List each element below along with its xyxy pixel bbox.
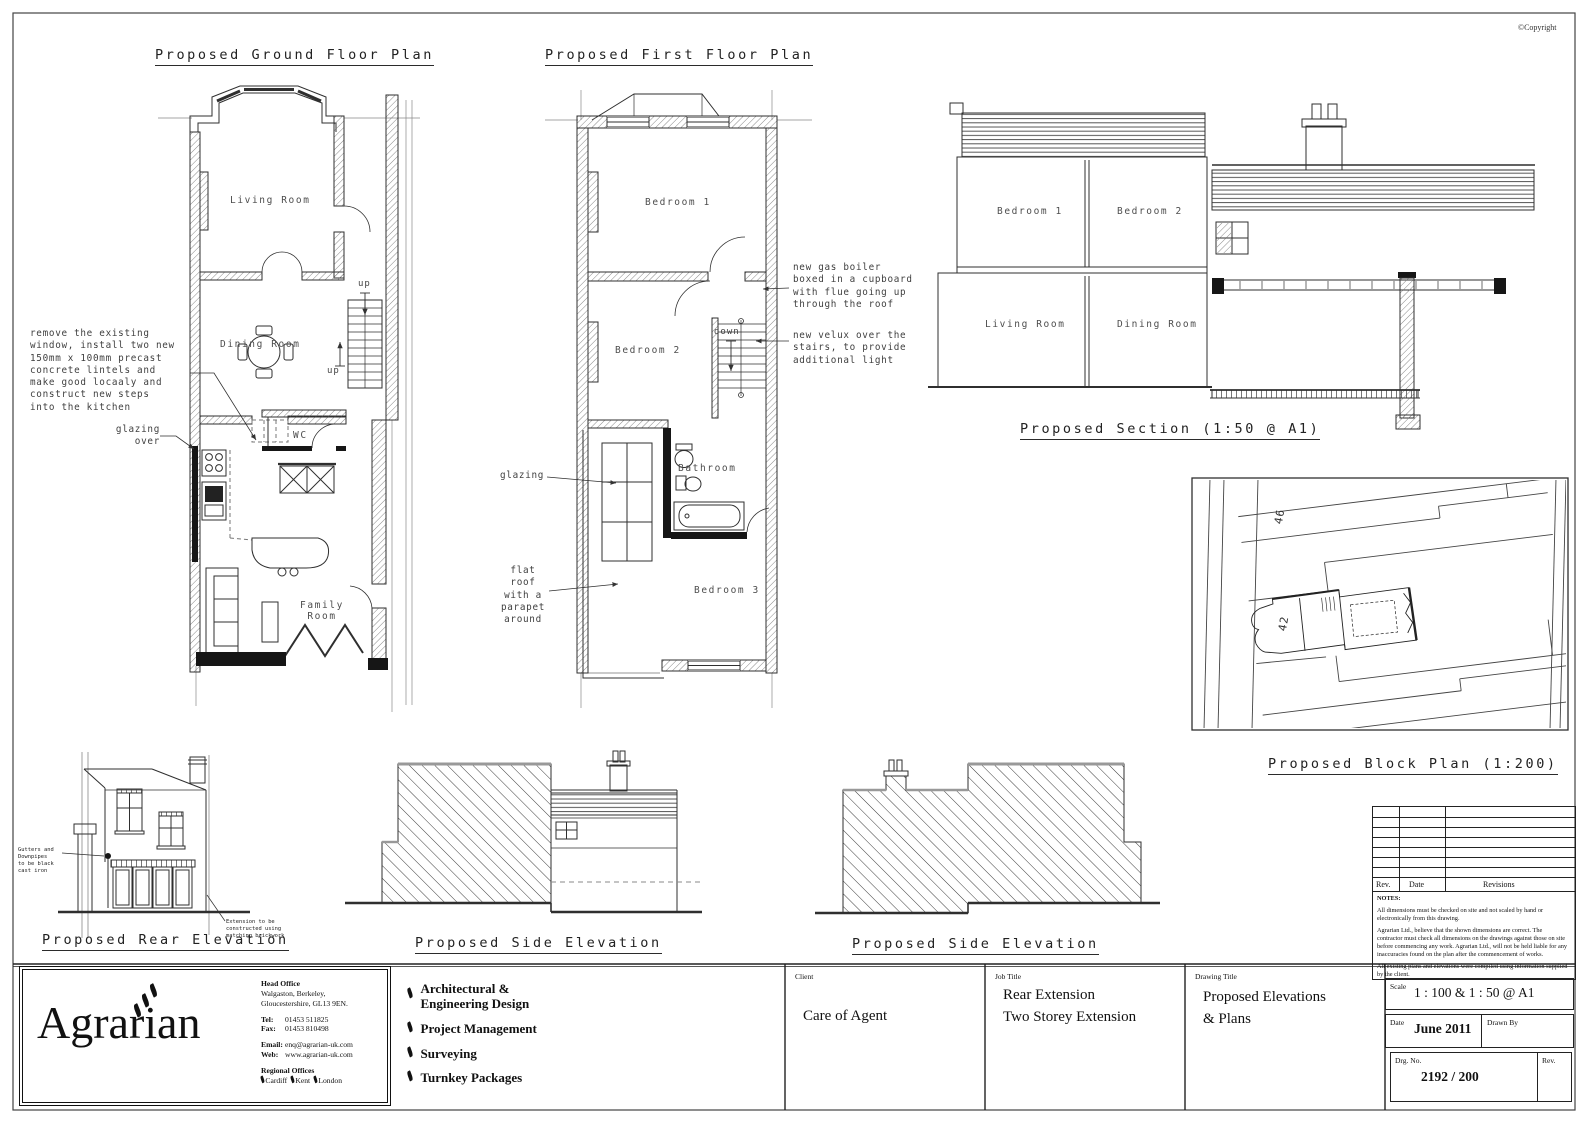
lintels-annotation: remove the existing window, install two … — [30, 328, 195, 414]
notes-block: NOTES: All dimensions must be checked on… — [1377, 895, 1569, 983]
block-plan-title: Proposed Block Plan (1:200) — [1268, 756, 1558, 775]
up-label-2: up — [327, 366, 340, 376]
ground-floor-plan-drawing — [158, 86, 420, 712]
linework-canvas — [0, 0, 1588, 1123]
date-box: Date June 2011 Drawn By — [1385, 1014, 1574, 1048]
service-item-3: Surveying — [408, 1047, 477, 1062]
service-item-4: Turnkey Packages — [408, 1071, 522, 1086]
date-column-header: Date — [1409, 880, 1424, 889]
regional-offices-label: Regional Offices — [261, 1066, 383, 1076]
flat-roof-annotation: flat roof with a parapet around — [496, 565, 550, 626]
service-item-1: Architectural & Engineering Design — [408, 982, 529, 1012]
drawn-by-label: Drawn By — [1487, 1018, 1518, 1027]
glazing-annotation: glazing — [500, 470, 544, 482]
section-bedroom2-label: Bedroom 2 — [1117, 206, 1183, 217]
copyright-note: ©Copyright — [1518, 23, 1557, 32]
living-room-label: Living Room — [230, 195, 311, 206]
drawing-title-label: Drawing Title — [1195, 972, 1237, 981]
bedroom3-label: Bedroom 3 — [694, 585, 760, 596]
company-logo: Agrarian — [37, 996, 200, 1049]
leaf-icon — [290, 1075, 295, 1083]
region-cardiff: Cardiff — [265, 1076, 287, 1085]
region-kent: Kent — [295, 1076, 310, 1085]
bedroom2-label: Bedroom 2 — [615, 345, 681, 356]
brickwork-annotation: Extension to be constructed using matchi… — [226, 919, 286, 940]
email-label: Email: — [261, 1040, 285, 1050]
velux-annotation: new velux over the stairs, to provide ad… — [793, 330, 913, 367]
drg-no-label: Drg. No. — [1395, 1056, 1421, 1065]
web-value: www.agrarian-uk.com — [285, 1050, 353, 1059]
logo-cell: Agrarian Head Office Walgaston, Berkeley… — [22, 969, 388, 1103]
dining-room-label: Dining Room — [220, 339, 301, 350]
family-room-label: Family Room — [292, 600, 352, 622]
fax-value: 01453 810498 — [285, 1024, 329, 1033]
side-elevation-right-title: Proposed Side Elevation — [852, 936, 1099, 955]
leaf-icon — [313, 1075, 318, 1083]
rear-elevation-drawing — [58, 752, 250, 938]
client-label: Client — [795, 972, 813, 981]
revisions-and-notes-panel: Rev. Date Revisions NOTES: All dimension… — [1372, 806, 1576, 980]
rev-column-header: Rev. — [1376, 880, 1390, 889]
scale-label: Scale — [1390, 982, 1406, 991]
plot-42-label: 42 — [1276, 615, 1291, 632]
section-bedroom1-label: Bedroom 1 — [997, 206, 1063, 217]
leaf-icon — [406, 1070, 413, 1081]
drg-no-value: 2192 / 200 — [1421, 1069, 1479, 1085]
leaf-icon — [406, 1046, 413, 1057]
job-title-label: Job Title — [995, 972, 1021, 981]
gutters-annotation: Gutters and Downpipes to be black cast i… — [18, 847, 63, 875]
contact-details: Head Office Walgaston, Berkeley, Glouces… — [261, 979, 383, 1086]
fax-label: Fax: — [261, 1024, 285, 1034]
date-label: Date — [1390, 1018, 1404, 1027]
drawing-number-box: Drg. No. 2192 / 200 Rev. — [1390, 1052, 1572, 1102]
regional-offices-list: Cardiff Kent London — [261, 1076, 383, 1086]
side-elevation-left-title: Proposed Side Elevation — [415, 935, 662, 954]
up-label-1: up — [358, 279, 371, 289]
job-title-value: Rear Extension Two Storey Extension — [1003, 985, 1136, 1029]
client-value: Care of Agent — [803, 1008, 887, 1025]
bathroom-label: Bathroom — [678, 463, 737, 474]
head-office-label: Head Office — [261, 979, 383, 989]
tel-label: Tel: — [261, 1015, 285, 1025]
wc-label: WC — [293, 430, 308, 441]
web-label: Web: — [261, 1050, 285, 1060]
head-office-address: Walgaston, Berkeley, Gloucestershire, GL… — [261, 989, 383, 1009]
leaf-icon — [406, 987, 413, 998]
region-london: London — [318, 1076, 342, 1085]
ground-floor-plan-title: Proposed Ground Floor Plan — [155, 47, 434, 66]
section-living-label: Living Room — [985, 319, 1066, 330]
boiler-annotation: new gas boiler boxed in a cupboard with … — [793, 262, 913, 311]
tel-value: 01453 511825 — [285, 1015, 328, 1024]
drawing-title-value: Proposed Elevations & Plans — [1203, 987, 1326, 1031]
scale-box: Scale 1 : 100 & 1 : 50 @ A1 — [1385, 978, 1574, 1010]
email-value: enq@agrarian-uk.com — [285, 1040, 353, 1049]
section-title: Proposed Section (1:50 @ A1) — [1020, 421, 1320, 440]
drawing-sheet: ©Copyright Proposed Ground Floor Plan Li… — [0, 0, 1588, 1123]
rev-label: Rev. — [1542, 1056, 1555, 1065]
glazing-over-annotation: glazing over — [110, 424, 160, 449]
block-plan-drawing — [1192, 478, 1573, 739]
revisions-column-header: Revisions — [1483, 880, 1515, 889]
side-elevation-left-drawing — [345, 751, 702, 912]
date-value: June 2011 — [1414, 1021, 1471, 1037]
notes-paragraph-1: All dimensions must be checked on site a… — [1377, 907, 1569, 923]
section-dining-label: Dining Room — [1117, 319, 1198, 330]
first-floor-plan-title: Proposed First Floor Plan — [545, 47, 813, 66]
bedroom1-label: Bedroom 1 — [645, 197, 711, 208]
first-floor-plan-drawing — [545, 90, 812, 708]
notes-paragraph-3: All existing plans and elevations were c… — [1377, 963, 1569, 979]
down-label: down — [714, 327, 740, 337]
side-elevation-right-drawing — [815, 760, 1160, 913]
notes-heading: NOTES: — [1377, 895, 1569, 903]
leaf-icon — [406, 1021, 413, 1032]
service-item-2: Project Management — [408, 1022, 537, 1037]
section-drawing — [928, 103, 1535, 429]
plot-46-label: 46 — [1272, 508, 1287, 525]
logo-leaves-icon — [135, 984, 165, 1020]
scale-value: 1 : 100 & 1 : 50 @ A1 — [1414, 985, 1534, 1001]
notes-paragraph-2: Agrarian Ltd., believe that the shown di… — [1377, 927, 1569, 959]
leaf-icon — [260, 1075, 265, 1083]
